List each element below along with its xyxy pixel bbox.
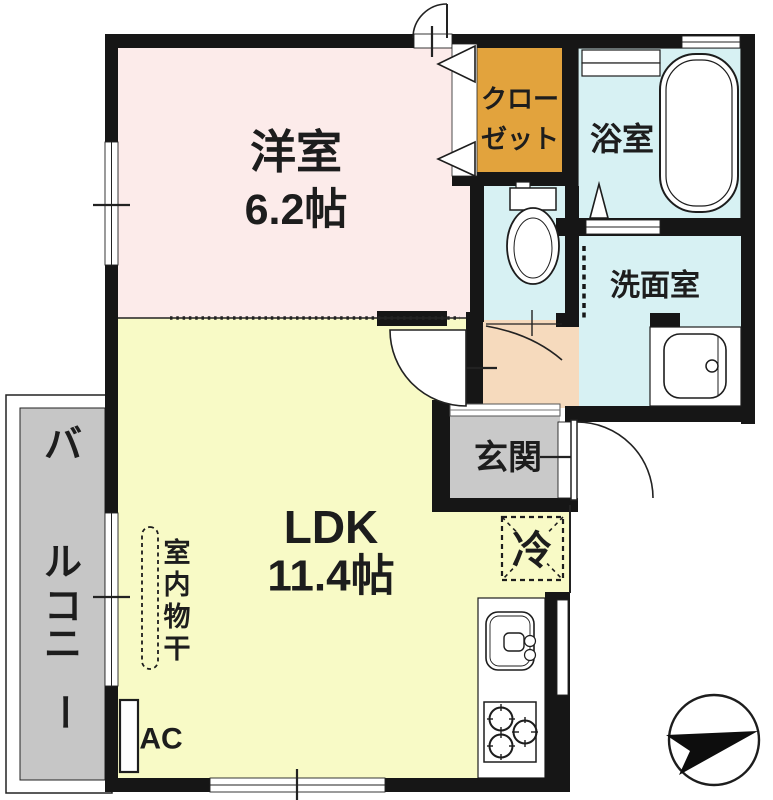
wall-closet-bath bbox=[562, 42, 578, 186]
vertical-label-char: ル bbox=[44, 542, 82, 584]
closet-label-1: クロー bbox=[481, 84, 559, 114]
bath-shelf bbox=[582, 63, 660, 76]
vertical-label-char: ニ bbox=[44, 624, 82, 666]
washroom-label: 洗面室 bbox=[610, 269, 700, 303]
ac-unit bbox=[120, 700, 138, 772]
front-door-swing bbox=[577, 422, 653, 498]
vertical-label-char: ー bbox=[42, 693, 84, 731]
front-door-leaf bbox=[571, 420, 577, 500]
kitchen-sink-icon bbox=[486, 612, 536, 670]
wall-entrance-left bbox=[432, 400, 450, 512]
wall-washroom-bottom bbox=[565, 406, 755, 422]
closet-label-2: ゼット bbox=[481, 124, 559, 154]
vertical-label-char: 内 bbox=[164, 570, 191, 600]
western-room-size: 6.2帖 bbox=[245, 186, 348, 234]
wall-toilet-right bbox=[565, 186, 579, 326]
wall-toilet-left bbox=[470, 172, 484, 322]
front-door-opening bbox=[558, 422, 572, 498]
vertical-label-char: 干 bbox=[164, 634, 191, 664]
floor-plan-canvas: 洋室 6.2帖 クロー ゼット 浴室 洗面室 玄関 LDK 11.4帖 冷 AC… bbox=[0, 0, 773, 800]
wall-basin-stub bbox=[650, 313, 680, 327]
ac-label: AC bbox=[139, 723, 182, 756]
wall-entrance-bottom bbox=[432, 498, 578, 512]
compass-icon bbox=[666, 695, 759, 785]
entrance-label: 玄関 bbox=[474, 439, 542, 477]
washbasin-icon bbox=[650, 327, 741, 406]
refrigerator-label: 冷 bbox=[512, 529, 552, 573]
ldk-size: 11.4帖 bbox=[267, 552, 394, 601]
wall-corner-block bbox=[556, 313, 579, 327]
western-room-floor bbox=[112, 42, 472, 324]
ldk-label: LDK bbox=[284, 501, 379, 553]
wall-hallway-left bbox=[466, 312, 483, 408]
western-room-label: 洋室 bbox=[250, 126, 342, 178]
floor-plan: 洋室 6.2帖 クロー ゼット 浴室 洗面室 玄関 LDK 11.4帖 冷 AC… bbox=[0, 0, 773, 800]
vertical-label-char: 室 bbox=[164, 537, 191, 568]
vertical-label-char: 物 bbox=[164, 602, 191, 632]
vertical-label-char: バ bbox=[44, 424, 82, 466]
toilet-icon bbox=[507, 182, 559, 284]
stove-icon bbox=[484, 702, 538, 762]
vertical-label-char: コ bbox=[44, 586, 82, 628]
bath-shelf bbox=[582, 50, 660, 63]
top-door-swing bbox=[413, 4, 447, 38]
bathroom-label: 浴室 bbox=[590, 121, 654, 157]
hallway-floor bbox=[483, 320, 579, 408]
window bbox=[557, 600, 568, 695]
